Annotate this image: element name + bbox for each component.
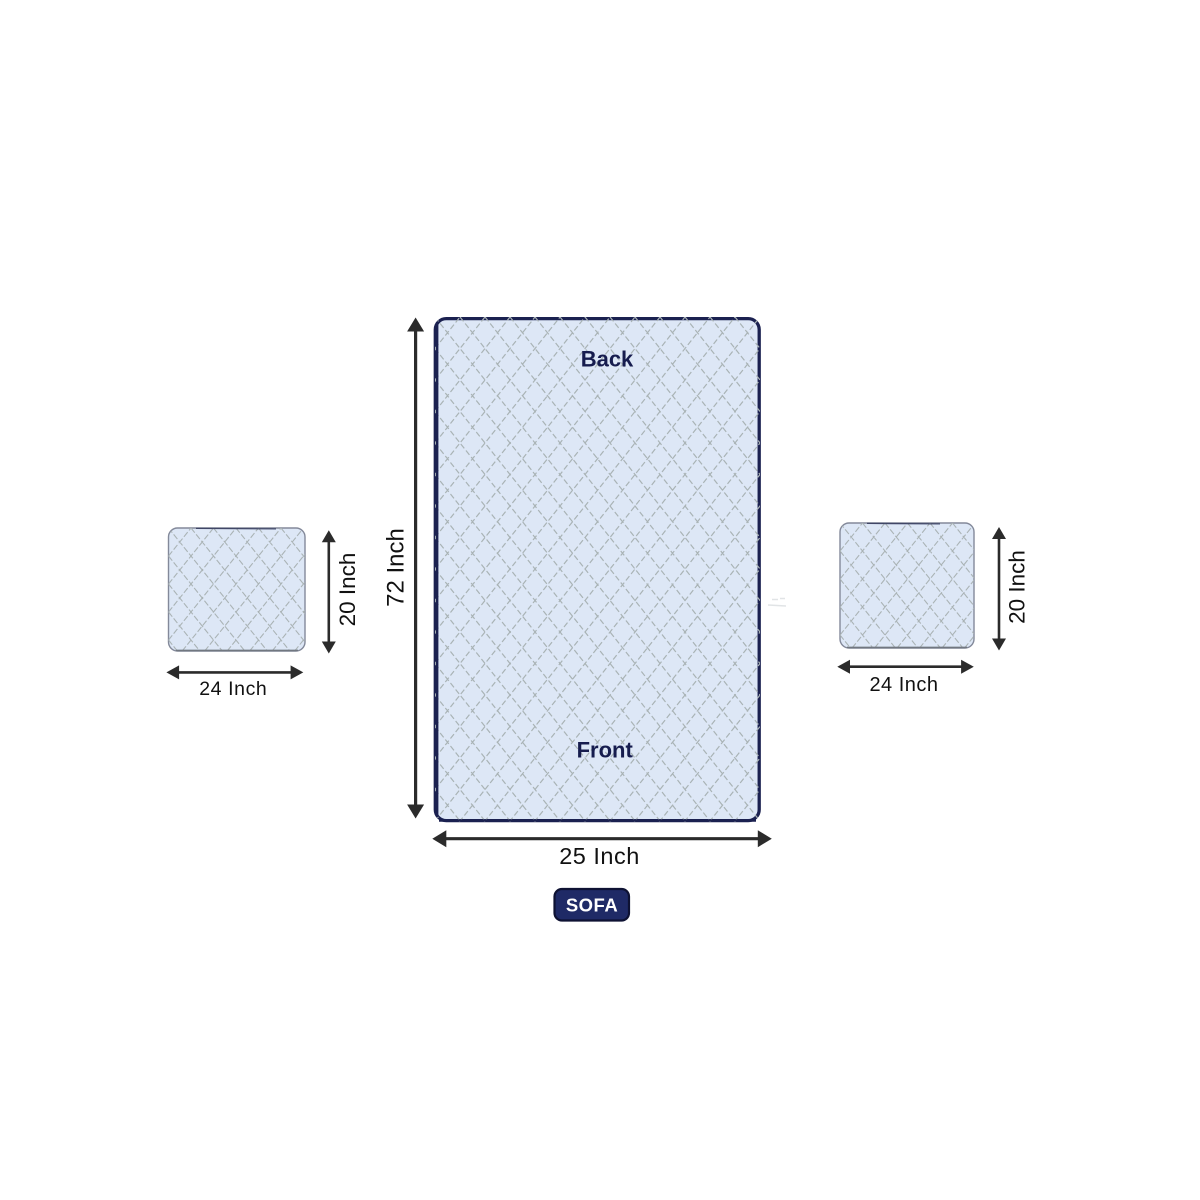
svg-text:SOFA: SOFA: [566, 895, 618, 916]
svg-text:72 Inch: 72 Inch: [383, 528, 410, 607]
svg-text:20 Inch: 20 Inch: [335, 553, 360, 627]
svg-text:20 Inch: 20 Inch: [1005, 550, 1030, 624]
svg-text:24 Inch: 24 Inch: [199, 678, 267, 700]
svg-text:25 Inch: 25 Inch: [559, 843, 640, 869]
svg-text:24 Inch: 24 Inch: [869, 674, 938, 696]
svg-text:Back: Back: [581, 346, 634, 371]
svg-text:Front: Front: [577, 738, 634, 763]
